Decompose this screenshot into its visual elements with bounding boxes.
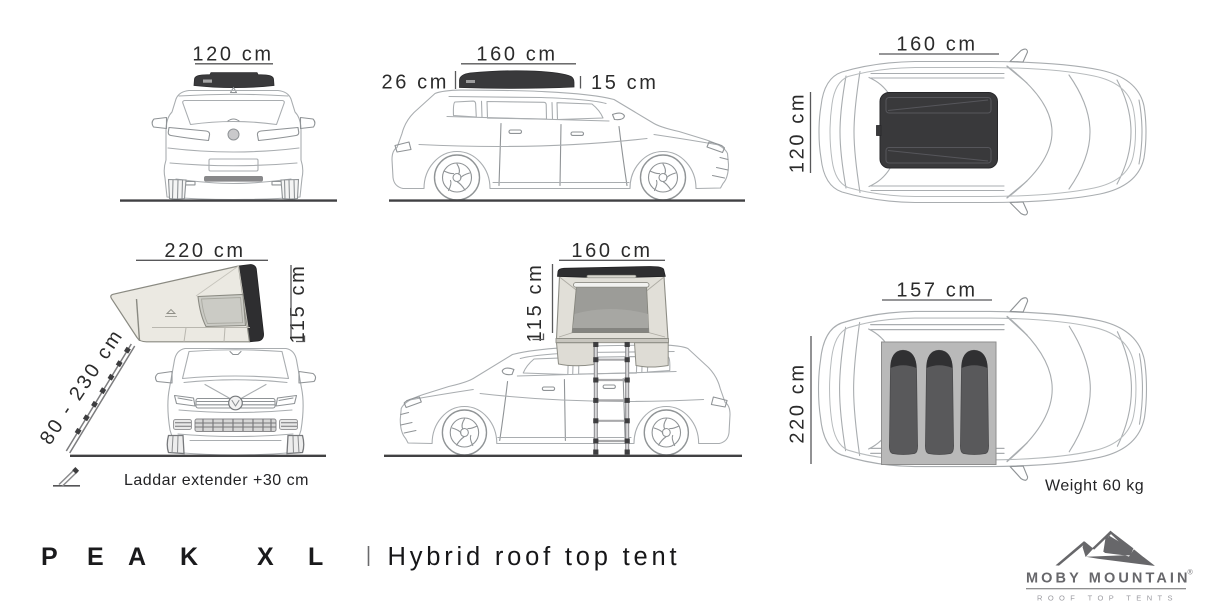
svg-text:L: L <box>308 543 323 571</box>
svg-text:160 cm: 160 cm <box>896 34 977 56</box>
svg-text:X: X <box>257 543 274 571</box>
svg-text:ROOF TOP TENTS: ROOF TOP TENTS <box>1037 594 1178 603</box>
svg-text:P: P <box>41 543 58 571</box>
svg-text:115 cm: 115 cm <box>287 264 309 344</box>
svg-text:80 - 230 cm: 80 - 230 cm <box>36 325 128 449</box>
svg-text:A: A <box>128 543 146 571</box>
svg-text:220 cm: 220 cm <box>787 362 809 443</box>
svg-text:160 cm: 160 cm <box>571 240 652 262</box>
svg-text:15 cm: 15 cm <box>591 72 658 94</box>
svg-text:K: K <box>180 543 198 571</box>
svg-text:26 cm: 26 cm <box>382 72 449 94</box>
svg-text:115 cm: 115 cm <box>524 263 546 343</box>
svg-text:E: E <box>87 543 104 571</box>
svg-text:®: ® <box>1188 569 1194 577</box>
svg-text:120 cm: 120 cm <box>192 44 273 66</box>
svg-text:Laddar extender +30 cm: Laddar extender +30 cm <box>124 472 309 489</box>
svg-text:Weight 60 kg: Weight 60 kg <box>1045 478 1144 495</box>
svg-text:157 cm: 157 cm <box>896 280 977 302</box>
svg-text:120 cm: 120 cm <box>787 92 809 173</box>
svg-text:Hybrid roof top tent: Hybrid roof top tent <box>388 543 681 571</box>
svg-text:220 cm: 220 cm <box>164 240 245 262</box>
svg-text:160 cm: 160 cm <box>476 44 557 66</box>
svg-text:MOBY MOUNTAIN: MOBY MOUNTAIN <box>1026 571 1191 587</box>
